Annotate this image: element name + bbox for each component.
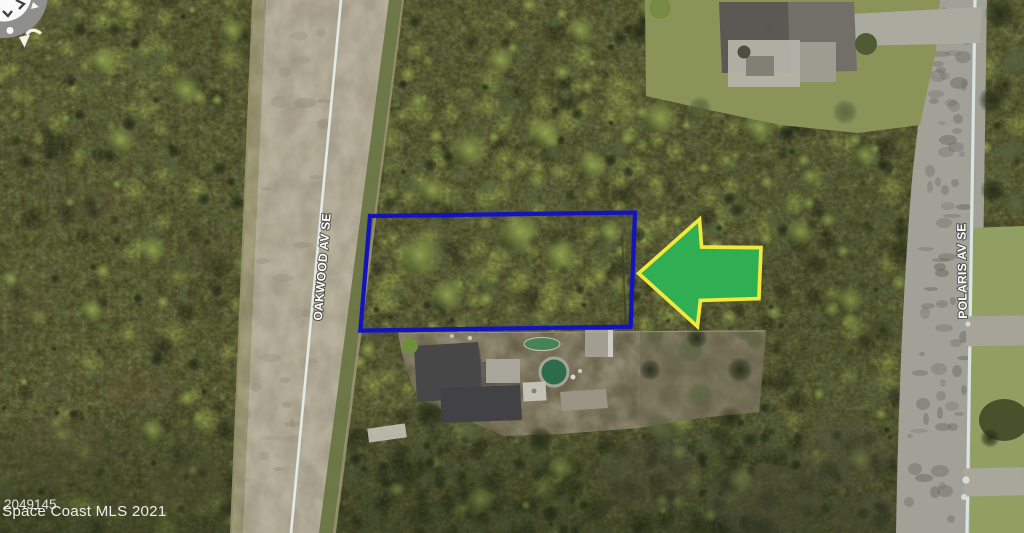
svg-text:POLARIS AV SE: POLARIS AV SE xyxy=(954,223,969,319)
svg-text:Space Coast MLS 2021: Space Coast MLS 2021 xyxy=(2,503,166,520)
